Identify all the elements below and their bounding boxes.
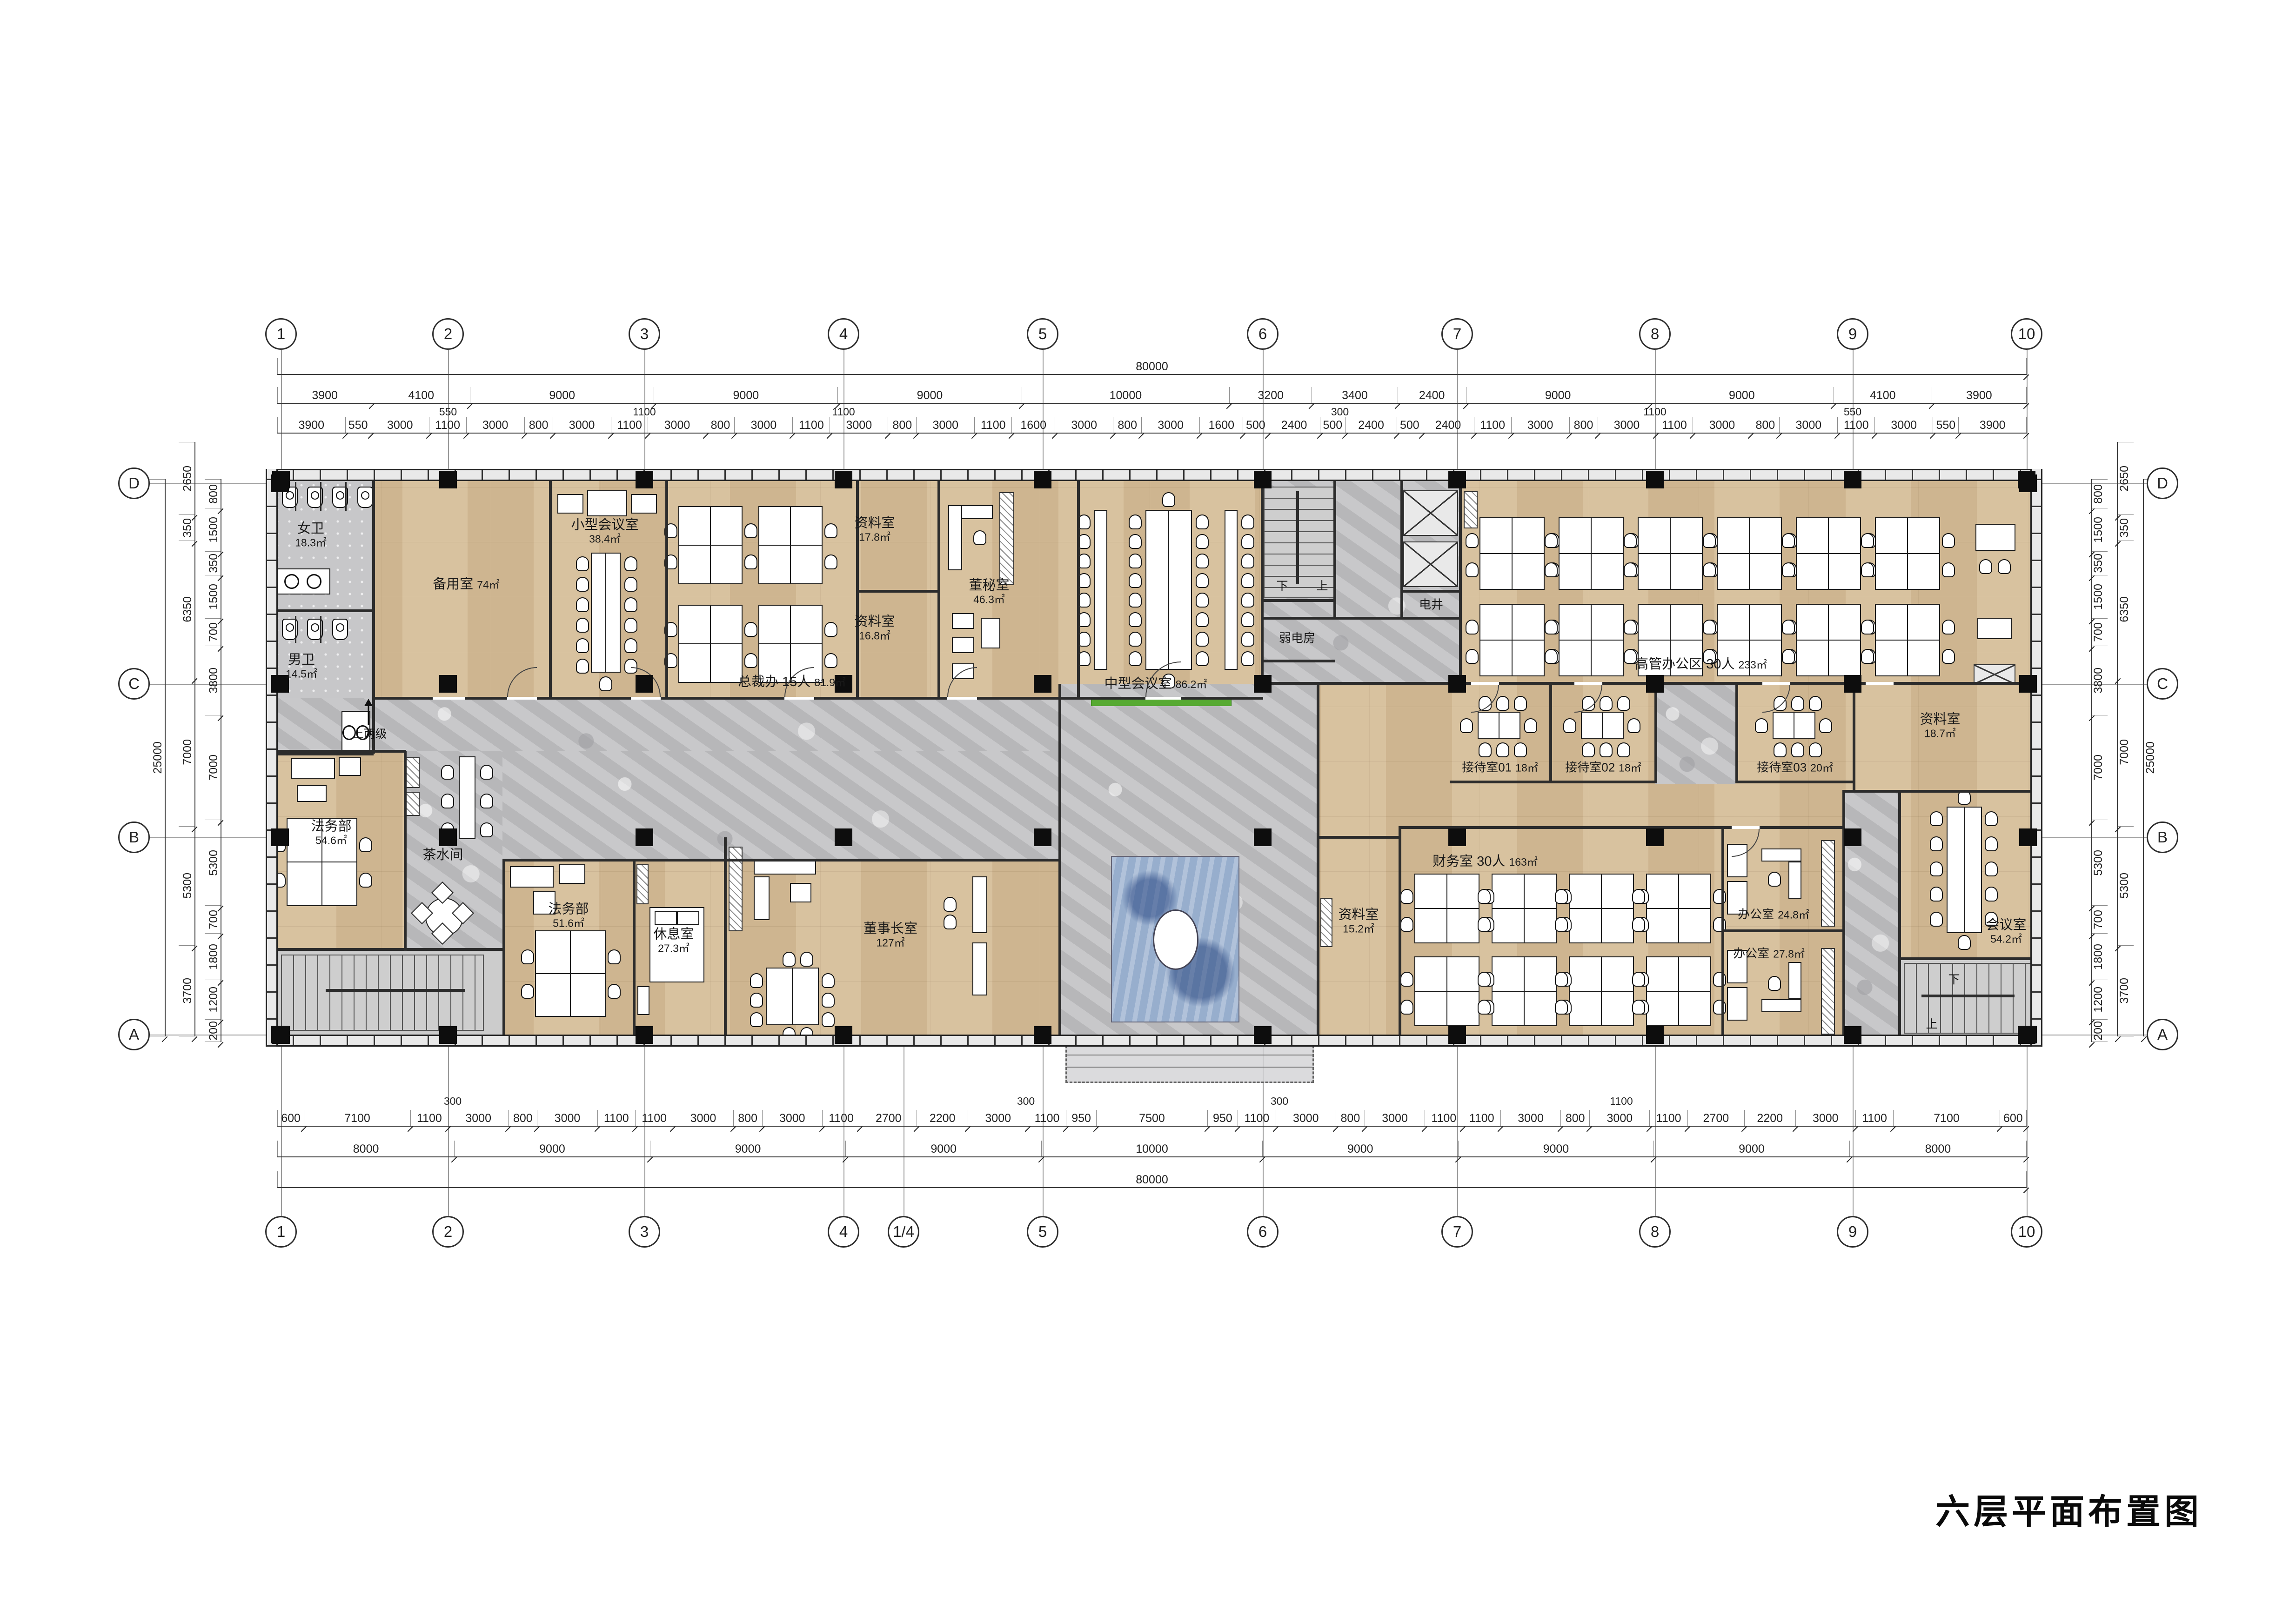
dim-right-overall: 25000 <box>2143 479 2160 1036</box>
dim-segment: 9000 <box>838 387 1022 403</box>
dim-segment: 9000 <box>654 387 838 403</box>
chair <box>1582 742 1595 757</box>
chair <box>1985 862 1998 876</box>
door-gap <box>631 697 661 700</box>
chair <box>1545 533 1558 548</box>
chair <box>1478 1000 1491 1015</box>
room-label-legal2: 法务部51.6㎡ <box>548 901 589 929</box>
desk-pod <box>1646 956 1711 1026</box>
column <box>1844 471 1861 488</box>
dim-segment: 3000 <box>830 417 888 433</box>
armchair <box>790 883 811 902</box>
sofa <box>1975 524 2015 551</box>
dim-segment: 800 <box>1561 1110 1590 1126</box>
chair <box>824 554 837 569</box>
dim-segment: 3900 <box>277 387 372 403</box>
dim-segment: 5300 <box>205 820 221 906</box>
grid-bubble-bottom: 1/4 <box>888 1216 919 1248</box>
chair <box>1196 651 1209 666</box>
chair <box>800 952 813 967</box>
chair <box>1782 620 1795 635</box>
grid-bubble-bottom: 9 <box>1837 1216 1868 1248</box>
column <box>1448 675 1466 693</box>
dim-segment: 3000 <box>1780 417 1838 433</box>
wall-h <box>1842 790 2038 793</box>
dim-segment: 9000 <box>1459 1141 1654 1156</box>
grid-bubble-left: D <box>118 468 150 499</box>
chair <box>1930 862 1943 876</box>
column <box>2019 675 2037 693</box>
sofa <box>510 866 554 888</box>
wall-v <box>724 837 727 1036</box>
chair <box>1861 562 1874 577</box>
grid-bubble-left: A <box>118 1019 150 1050</box>
dim-segment: 2650 <box>2118 442 2134 515</box>
chair <box>973 530 986 545</box>
chair <box>1241 612 1254 627</box>
chair <box>1791 696 1804 711</box>
chair <box>744 653 757 668</box>
dim-top-main: 3900410090009000900010000320034002400900… <box>277 387 2027 404</box>
column <box>439 675 457 693</box>
chair <box>1782 533 1795 548</box>
desk-pod <box>1414 874 1479 943</box>
dim-top-detail: 3900550300011003000800300011003000800300… <box>277 417 2027 434</box>
room-label-tea: 茶水间 <box>421 847 465 863</box>
desk-pod <box>678 605 743 683</box>
column <box>1034 675 1051 693</box>
dim-segment: 1100 <box>1474 417 1512 433</box>
chair <box>1496 696 1509 711</box>
shelf <box>1320 898 1332 947</box>
chair <box>1196 534 1209 549</box>
corridor-center <box>502 751 1058 861</box>
chair <box>1809 696 1822 711</box>
dim-segment: 3800 <box>205 646 221 715</box>
grid-line <box>644 1042 645 1217</box>
dim-offset: 300 <box>444 1095 462 1108</box>
dim-segment: 7100 <box>304 1110 410 1126</box>
column <box>271 828 289 846</box>
grid-bubble-bottom: 8 <box>1639 1216 1671 1248</box>
dim-segment: 1500 <box>2092 575 2108 619</box>
cabinet <box>999 492 1014 585</box>
grid-line <box>1043 1042 1044 1217</box>
elevator <box>1403 541 1458 587</box>
wall-v <box>1400 479 1403 619</box>
column <box>271 474 289 492</box>
corridor-reception <box>1655 684 1735 784</box>
drawing-title: 六层平面布置图 <box>1935 1484 2202 1534</box>
room-label-archive3: 资料室18.7㎡ <box>1920 711 1960 740</box>
dim-segment: 1200 <box>205 980 221 1020</box>
dim-segment: 80000 <box>277 1171 2027 1187</box>
chair <box>576 618 589 633</box>
chair <box>1958 935 1971 950</box>
column <box>1844 1026 1861 1044</box>
chair <box>1930 811 1943 826</box>
dim-segment: 1500 <box>205 575 221 619</box>
chair <box>1241 554 1254 568</box>
chair <box>744 523 757 538</box>
column <box>1844 675 1861 693</box>
dim-segment: 3000 <box>467 417 525 433</box>
chair <box>576 577 589 592</box>
chair <box>1466 620 1479 635</box>
chair <box>783 952 796 967</box>
dim-segment: 1100 <box>429 417 467 433</box>
grid-bubble-left: C <box>118 668 150 700</box>
dim-segment: 9000 <box>1654 1141 1850 1156</box>
column <box>1254 675 1272 693</box>
dim-segment: 3900 <box>1932 387 2027 403</box>
wall-h <box>271 609 374 612</box>
column <box>1646 471 1664 488</box>
wall-h <box>271 948 504 951</box>
dim-segment: 800 <box>2092 479 2108 508</box>
grid-bubble-top: 6 <box>1247 318 1279 350</box>
chair <box>1563 718 1576 733</box>
wall-h <box>1898 957 2037 960</box>
column <box>271 1026 289 1043</box>
chair <box>624 556 637 571</box>
room-label-office1: 办公室24.8㎡ <box>1736 908 1811 922</box>
dim-segment: 5300 <box>2118 827 2134 945</box>
cabinet <box>1727 987 1747 1021</box>
chair <box>480 822 493 837</box>
chair <box>1545 562 1558 577</box>
wardrobe <box>636 864 649 904</box>
door-gap <box>1145 697 1181 700</box>
dim-segment: 800 <box>1570 417 1598 433</box>
dim-left-detail: 8001500350150070038007000530070018001200… <box>205 479 221 1042</box>
chair <box>441 765 454 780</box>
window-band-west <box>266 469 278 1047</box>
wall-h <box>271 750 406 753</box>
chair <box>359 837 372 852</box>
wall-h <box>372 697 1263 700</box>
sofa <box>559 864 585 884</box>
wall-v <box>1735 684 1738 783</box>
dim-segment: 9000 <box>470 387 654 403</box>
chair <box>744 554 757 569</box>
sofa <box>1977 618 2012 639</box>
room-label-finance: 财务室 30人163㎡ <box>1431 854 1540 869</box>
dim-segment: 3900 <box>1959 417 2027 433</box>
chair <box>944 897 957 912</box>
pantry-cabinet <box>406 757 420 788</box>
wall-h <box>1317 836 1400 839</box>
chair <box>750 1012 763 1027</box>
chair <box>822 973 835 988</box>
dim-segment: 3000 <box>1512 417 1570 433</box>
chair <box>608 984 621 999</box>
column <box>636 471 653 488</box>
dim-segment: 4100 <box>372 387 470 403</box>
sofa <box>952 613 974 629</box>
dim-segment: 1100 <box>1238 1110 1276 1126</box>
wc-stall-wall <box>320 616 321 643</box>
desk-pod <box>1569 874 1634 943</box>
chair <box>359 873 372 888</box>
chair <box>1241 534 1254 549</box>
dim-segment: 950 <box>1066 1110 1097 1126</box>
dim-segment: 3000 <box>648 417 706 433</box>
chair <box>1496 742 1509 757</box>
grid-bubble-right: D <box>2147 468 2178 499</box>
chair <box>1400 972 1413 987</box>
chair <box>1196 612 1209 627</box>
chair <box>521 984 534 999</box>
chair <box>944 915 957 929</box>
desk-pod <box>678 506 743 584</box>
l-desk <box>1788 862 1801 899</box>
dim-segment: 800 <box>734 1110 763 1126</box>
grid-bubble-top: 9 <box>1837 318 1868 350</box>
grid-line <box>843 1042 844 1217</box>
chair <box>624 638 637 653</box>
dim-segment: 3400 <box>1312 387 1398 403</box>
wall-v <box>1333 479 1336 619</box>
dim-segment: 9000 <box>1466 387 1650 403</box>
chair <box>1162 492 1175 507</box>
column <box>1646 675 1664 693</box>
chair <box>822 993 835 1008</box>
room-label-office2: 办公室27.8㎡ <box>1731 947 1807 961</box>
entrance-canopy <box>1065 1041 1314 1083</box>
chair <box>1703 620 1716 635</box>
chair <box>576 556 589 571</box>
room-label-wc-women: 女卫18.3㎡ <box>295 521 327 549</box>
grid-bubble-bottom: 6 <box>1247 1216 1279 1248</box>
sofa <box>587 490 627 516</box>
stair-sw <box>281 955 484 1031</box>
desk-pod <box>1559 604 1624 676</box>
dim-segment: 1500 <box>205 508 221 552</box>
column <box>636 828 653 846</box>
dim-segment: 3000 <box>968 1110 1028 1126</box>
dim-segment: 600 <box>277 1110 304 1126</box>
chair <box>1819 718 1832 733</box>
dim-segment: 1600 <box>1200 417 1243 433</box>
chair <box>1400 1000 1413 1015</box>
dim-segment: 2200 <box>917 1110 968 1126</box>
chair <box>1768 976 1781 991</box>
dim-segment: 6350 <box>179 541 194 678</box>
dim-segment: 1100 <box>611 417 649 433</box>
chair <box>1545 620 1558 635</box>
grid-bubble-bottom: 2 <box>432 1216 464 1248</box>
dim-segment: 700 <box>205 906 221 934</box>
corridor-west <box>271 698 1058 752</box>
dim-segment: 25000 <box>149 479 165 1036</box>
chair <box>1703 533 1716 548</box>
column <box>1254 471 1272 488</box>
dim-segment: 1100 <box>823 1110 860 1126</box>
desk-pod <box>1479 604 1545 676</box>
dim-segment: 200 <box>2092 1020 2108 1042</box>
reception-table <box>1773 712 1815 739</box>
stair-up-note: 上 <box>1316 577 1328 594</box>
chair <box>1196 593 1209 608</box>
column <box>636 675 653 693</box>
dim-offset: 550 <box>439 406 457 418</box>
dim-segment: 10000 <box>1042 1141 1263 1156</box>
wall-h <box>1450 781 1654 783</box>
chair <box>1129 573 1142 588</box>
chair <box>1129 612 1142 627</box>
wall-v <box>1853 684 1855 792</box>
stair-rail <box>326 989 465 992</box>
dim-segment: 350 <box>205 552 221 575</box>
column <box>439 471 457 488</box>
dim-segment: 350 <box>2118 515 2134 541</box>
dim-offset: 300 <box>1017 1095 1035 1108</box>
dim-left-main: 26503506350700053003700 <box>179 442 195 1036</box>
chair <box>1768 872 1781 887</box>
dim-segment: 10000 <box>1022 387 1230 403</box>
column <box>439 1026 457 1044</box>
dim-segment: 2400 <box>1422 417 1474 433</box>
dim-offset: 1100 <box>633 406 656 418</box>
dim-segment: 1100 <box>1650 1110 1687 1126</box>
dim-segment: 5300 <box>179 827 194 945</box>
grid-line <box>1457 1042 1458 1217</box>
chair <box>1545 649 1558 664</box>
chair <box>624 618 637 633</box>
dim-segment: 3000 <box>1276 1110 1336 1126</box>
dim-segment: 9000 <box>846 1141 1042 1156</box>
dim-segment: 1600 <box>1012 417 1055 433</box>
chair <box>1400 917 1413 932</box>
dim-segment: 9000 <box>1263 1141 1459 1156</box>
dim-segment: 3000 <box>1365 1110 1425 1126</box>
dim-segment: 3000 <box>1875 417 1933 433</box>
stair-up-note-br: 上 <box>1926 1015 1937 1032</box>
column <box>1448 828 1466 846</box>
dim-segment: 1100 <box>598 1110 636 1126</box>
dim-segment: 5300 <box>2092 820 2108 906</box>
dim-segment: 800 <box>509 1110 537 1126</box>
bar-table <box>459 756 475 839</box>
chair <box>1930 912 1943 927</box>
chair <box>1514 742 1527 757</box>
wall-h <box>1261 682 2028 685</box>
chair <box>1129 651 1142 666</box>
dim-segment: 8000 <box>277 1141 455 1156</box>
desk-pod <box>1646 874 1711 943</box>
wall-v <box>856 479 859 699</box>
chair <box>1600 742 1613 757</box>
pantry-cabinet <box>406 792 420 816</box>
chair <box>441 794 454 808</box>
grid-bubble-top: 2 <box>432 318 464 350</box>
wall-v <box>633 861 636 1036</box>
chair <box>1466 562 1479 577</box>
grid-line <box>2027 350 2028 474</box>
dim-segment: 9000 <box>650 1141 846 1156</box>
conference-table <box>1947 807 1982 933</box>
dim-segment: 3000 <box>537 1110 597 1126</box>
dim-segment: 2650 <box>179 442 194 515</box>
dim-segment: 80000 <box>277 358 2027 374</box>
chair <box>1782 562 1795 577</box>
cabinet <box>1821 840 1835 927</box>
dim-segment: 800 <box>1113 417 1142 433</box>
dim-segment: 3000 <box>673 1110 733 1126</box>
floor-plan-sheet: 8000039004100900090009000100003200340024… <box>0 0 2296 1623</box>
conference-table <box>1145 510 1192 670</box>
wall-h <box>1261 660 1335 662</box>
wall-v <box>1077 479 1080 699</box>
chair <box>824 622 837 637</box>
cabinet <box>1464 491 1478 528</box>
column <box>2019 474 2037 492</box>
chair <box>608 949 621 964</box>
stair-rail <box>1921 995 2015 997</box>
dim-segment: 500 <box>1320 417 1345 433</box>
desk-pod <box>1414 956 1479 1026</box>
chair <box>1782 649 1795 664</box>
column <box>2019 828 2037 846</box>
dim-top-overall: 80000 <box>277 358 2027 375</box>
dim-segment: 700 <box>2092 619 2108 647</box>
wall-v <box>549 479 552 699</box>
chair <box>1129 554 1142 568</box>
chair <box>1129 514 1142 529</box>
chair <box>1524 718 1537 733</box>
chair <box>1979 559 1992 574</box>
dim-segment: 1500 <box>2092 508 2108 552</box>
chair <box>1129 593 1142 608</box>
corridor-east <box>1842 791 1898 1036</box>
dim-segment: 3000 <box>1501 1110 1561 1126</box>
sofa <box>754 876 770 920</box>
sofa <box>291 758 335 779</box>
chair <box>1555 889 1568 904</box>
dim-offset: 550 <box>1844 406 1861 418</box>
dim-segment: 950 <box>1208 1110 1238 1126</box>
wall-v <box>404 751 407 951</box>
chair <box>576 597 589 612</box>
dim-segment: 3000 <box>917 417 975 433</box>
chair <box>1514 696 1527 711</box>
chair <box>576 659 589 674</box>
sofa <box>981 618 1000 648</box>
dim-segment: 3000 <box>1796 1110 1856 1126</box>
dim-segment: 3000 <box>448 1110 509 1126</box>
dim-segment: 1100 <box>975 417 1012 433</box>
room-label-reception1: 接待室0118㎡ <box>1460 761 1540 775</box>
dim-segment: 9000 <box>455 1141 650 1156</box>
grid-line <box>281 1042 282 1217</box>
dim-segment: 1100 <box>793 417 830 433</box>
wall-h <box>1400 590 1461 593</box>
column <box>1448 471 1466 488</box>
dim-segment: 3000 <box>553 417 611 433</box>
dim-segment: 3000 <box>1693 417 1751 433</box>
dim-segment: 1100 <box>1463 1110 1501 1126</box>
dim-segment: 1100 <box>636 1110 673 1126</box>
meeting-table <box>766 968 819 1025</box>
chair <box>1555 1000 1568 1015</box>
wall-v <box>1317 684 1319 1036</box>
dim-segment: 7000 <box>205 715 221 820</box>
chair <box>1627 718 1640 733</box>
column <box>835 1026 852 1044</box>
room-label-backup: 备用室74㎡ <box>431 576 502 592</box>
door-gap <box>784 697 814 700</box>
